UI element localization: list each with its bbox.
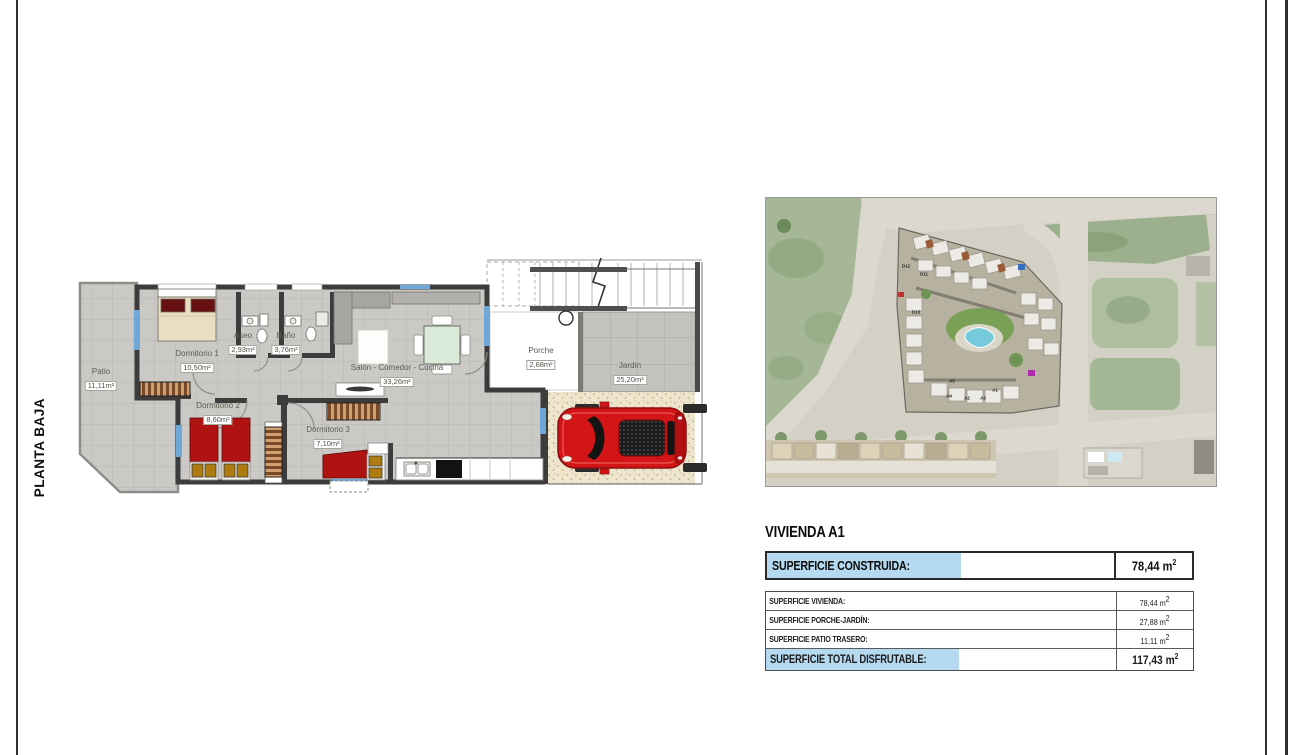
page-border-right-inner	[1265, 0, 1267, 755]
highlight-cell: SUPERFICIE CONSTRUIDA:	[767, 553, 961, 578]
map-building-label: D11	[920, 272, 928, 277]
page-border-right-outer	[1285, 0, 1288, 755]
map-building-label: A3	[980, 396, 986, 401]
map-building-label: A2	[964, 396, 970, 401]
room-label-bano: Baño 3,76m²	[271, 332, 300, 357]
stair-break-line	[593, 258, 605, 310]
room-label-patio: Patio 11,11m²	[85, 368, 117, 393]
wardrobe-dorm1	[140, 382, 190, 396]
window-dorm2	[176, 425, 182, 457]
plan-sheet: { "side_label": "PLANTA BAJA", "plan": {…	[0, 0, 1290, 755]
room-label-porche: Porche 2,68m²	[526, 347, 555, 372]
table-row-porche-jardin: SUPERFICIE PORCHE-JARDÍN: 27,88 m2	[766, 610, 1193, 629]
room-label-dormitorio1: Dormitorio 1 10,50m²	[175, 350, 219, 375]
porche-jardin-divider	[578, 312, 583, 392]
wardrobe-dorm3	[327, 403, 380, 420]
unit-title: VIVIENDA A1	[765, 524, 1194, 542]
map-building-label: A4	[946, 394, 952, 399]
cooktop	[436, 460, 462, 478]
map-building-label: D12	[902, 264, 910, 269]
wardrobe-dorm2	[265, 422, 282, 483]
rug	[358, 330, 388, 364]
table-row-total-disfrutable: SUPERFICIE TOTAL DISFRUTABLE: 117,43 m2	[766, 648, 1193, 670]
bed-double	[158, 289, 216, 341]
construida-value-cell: 78,44 m2	[1114, 553, 1192, 578]
window-salon	[484, 306, 490, 346]
column	[559, 311, 573, 325]
wall-right-outer	[695, 262, 700, 392]
car	[558, 402, 707, 474]
map-building-label: A5	[949, 379, 955, 384]
kitchen-counter	[396, 458, 543, 480]
window-dorm1	[134, 310, 140, 350]
table-row-patio-trasero: SUPERFICIE PATIO TRASERO: 11,11 m2	[766, 629, 1193, 648]
room-label-salon: Salón - Comedor - Cocina 33,26m²	[351, 364, 443, 389]
map-building-label: D13	[912, 310, 920, 315]
window-driveway	[540, 408, 546, 434]
room-label-aseo: Aseo 2,93m²	[228, 332, 257, 357]
room-label-dormitorio2: Dormitorio 2 8,60m²	[196, 402, 240, 427]
area-breakdown-table: SUPERFICIE VIVIENDA: 78,44 m2 SUPERFICIE…	[765, 591, 1194, 671]
room-label-dormitorio3: Dormitorio 3 7,10m²	[306, 426, 350, 451]
floor-plan: Patio 11,11m² Dormitorio 1 10,50m² Aseo …	[70, 256, 710, 496]
page-border-left	[16, 0, 18, 755]
table-row-vivienda: SUPERFICIE VIVIENDA: 78,44 m2	[766, 592, 1193, 610]
room-label-jardin: Jardín 25,20m²	[613, 362, 647, 387]
aerial-map-drawing	[766, 198, 1216, 486]
floor-title-text: PLANTA BAJA	[32, 398, 47, 497]
aerial-site-map: D12D11D13A5A4A2A3A1	[765, 197, 1217, 487]
map-building-label: A1	[992, 388, 998, 393]
details-panel: VIVIENDA A1 SUPERFICIE CONSTRUIDA: 78,44…	[765, 524, 1194, 671]
superficie-construida-row: SUPERFICIE CONSTRUIDA: 78,44 m2	[765, 551, 1194, 580]
entry-step	[330, 481, 368, 492]
floor-title-vertical: PLANTA BAJA	[30, 402, 48, 494]
